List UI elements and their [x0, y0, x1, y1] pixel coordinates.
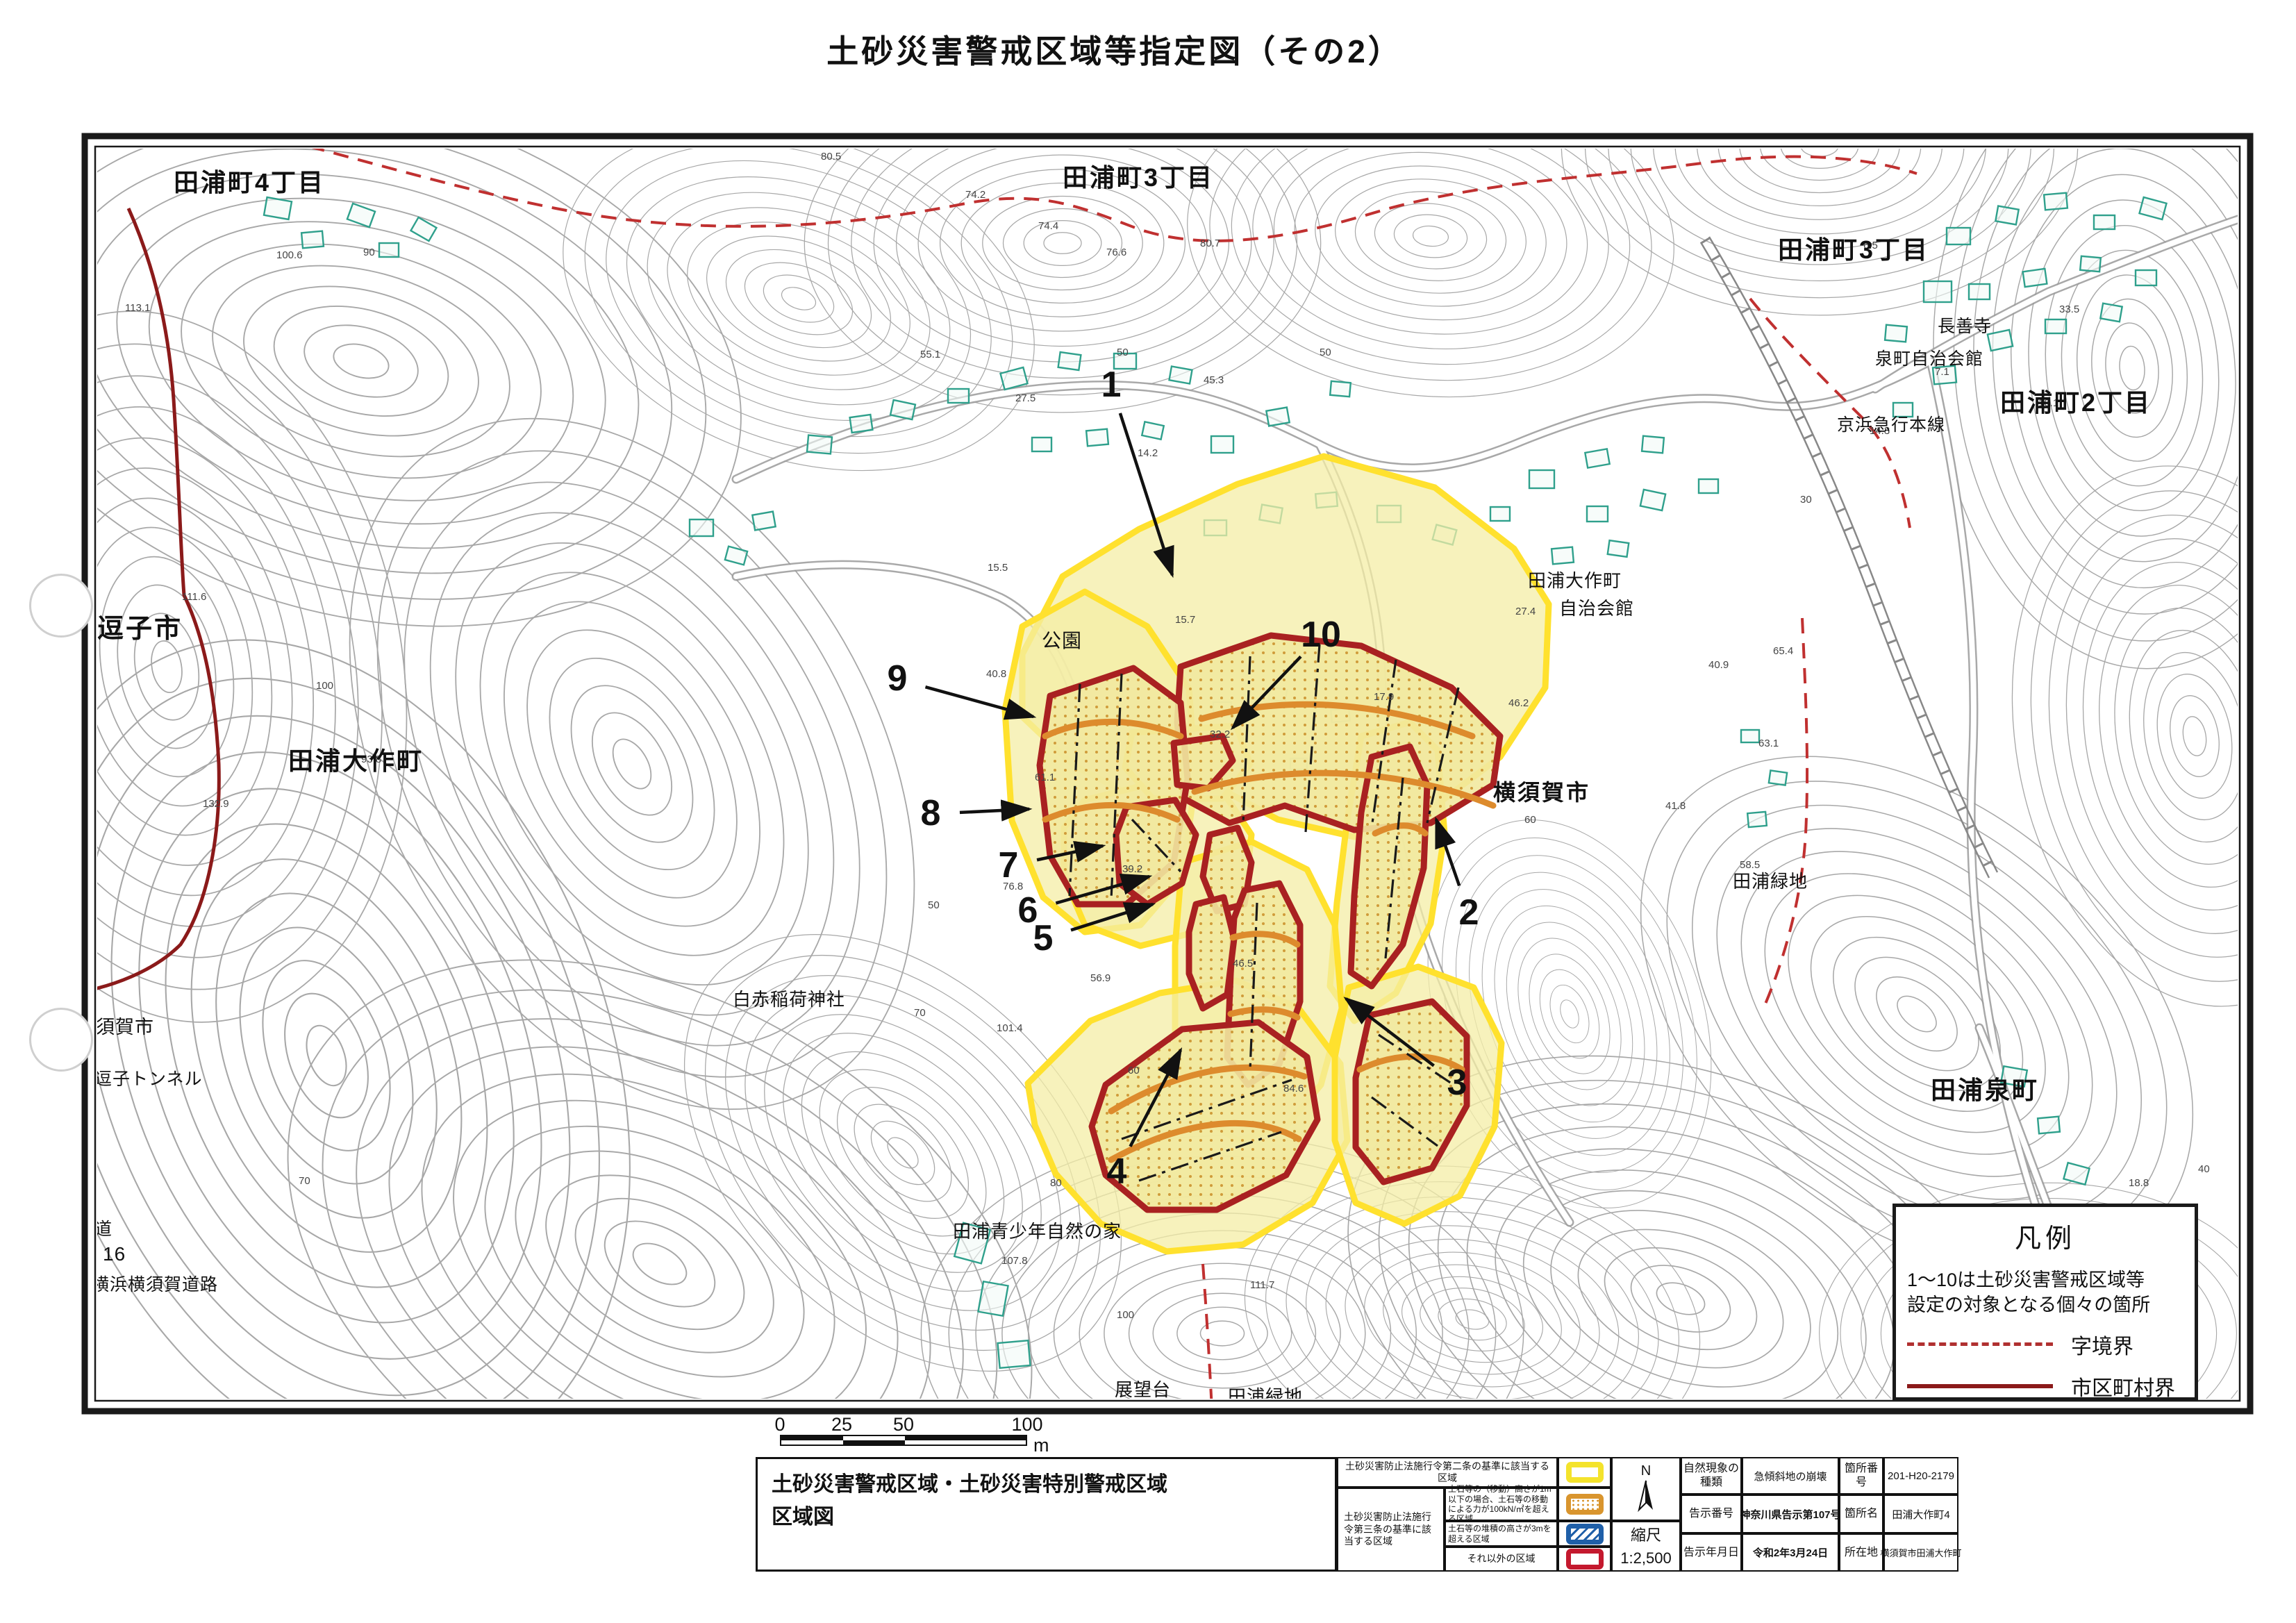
scale-tick: 25: [831, 1414, 852, 1435]
elevation-label: 50: [928, 899, 940, 911]
building-footprint: [1490, 507, 1510, 521]
elevation-label: 70: [914, 1007, 926, 1019]
elevation-label: 18.8: [2129, 1177, 2149, 1189]
building-footprint: [1885, 325, 1907, 342]
zone-number: 9: [888, 658, 908, 699]
elevation-label: 58.5: [1740, 859, 1760, 871]
elevation-label: 80.5: [821, 151, 841, 163]
building-footprint: [2038, 1117, 2060, 1134]
legend-row-aza-boundary: 字境界: [1907, 1329, 2195, 1360]
legend-title: 凡例: [1896, 1217, 2195, 1255]
building-footprint: [1640, 490, 1665, 510]
elevation-label: 132.9: [203, 798, 229, 810]
criteria-row3-label: 土石等の堆積の高さが3mを超える区域: [1445, 1521, 1558, 1547]
zone-number: 1: [1101, 365, 1122, 405]
place-label: 田浦町4丁目: [174, 168, 325, 197]
place-label: 長善寺: [1938, 317, 1992, 336]
warning-zone-swatch: [1566, 1462, 1604, 1483]
building-footprint: [1608, 540, 1629, 557]
zone-number: 7: [999, 845, 1019, 885]
building-footprint: [1529, 470, 1554, 488]
punch-hole: [29, 574, 93, 638]
elevation-label: 107.8: [1001, 1255, 1028, 1267]
elevation-label: 50: [1320, 347, 1331, 358]
map-doc-title-cell: 土砂災害警戒区域・土砂災害特別警戒区域 区域図: [756, 1457, 1337, 1572]
scanned-hazard-map-page: 土砂災害警戒区域等指定図（その2）: [0, 0, 2296, 1623]
zone-number: 3: [1447, 1063, 1467, 1103]
building-footprint: [1169, 367, 1192, 384]
info-label: 告示番号: [1681, 1495, 1742, 1533]
building-footprint: [1552, 547, 1574, 565]
place-label: 泉町自治会館: [1875, 349, 1983, 369]
place-label: 田浦町2丁目: [2000, 388, 2152, 417]
elevation-label: 17.9: [1374, 691, 1394, 703]
building-footprint: [1585, 449, 1609, 467]
scale-cell: 縮尺 1:2,500: [1611, 1521, 1681, 1572]
building-footprint: [807, 435, 832, 454]
info-value: 田浦大作町4: [1883, 1495, 1958, 1533]
building-footprint: [1924, 281, 1952, 302]
building-footprint: [1142, 422, 1164, 439]
building-footprint: [301, 231, 324, 249]
building-footprint: [1947, 228, 1970, 244]
building-footprint: [1747, 812, 1767, 827]
elevation-label: 41.8: [1665, 800, 1686, 812]
elevation-label: 46.5: [1233, 958, 1253, 969]
swatch-cell: [1558, 1488, 1611, 1521]
solid-line-sample: [1907, 1384, 2053, 1388]
criteria-row1-label: 土砂災害防止法施行令第二条の基準に該当する区域: [1337, 1457, 1558, 1488]
elevation-label: 27.5: [1015, 392, 1035, 404]
place-label: 田浦大作町: [1528, 570, 1622, 591]
building-footprint: [1266, 408, 1289, 426]
info-label: 箇所名: [1839, 1495, 1883, 1533]
place-label: 逗子市: [97, 615, 183, 644]
building-footprint: [1587, 506, 1608, 522]
place-label: 自治会館: [1559, 598, 1634, 619]
elevation-label: 45.3: [1204, 374, 1224, 386]
elevation-label: 100: [1117, 1309, 1134, 1321]
zone-number: 6: [1018, 890, 1038, 931]
elevation-label: 40: [2198, 1163, 2210, 1175]
elevation-label: 80: [1050, 1177, 1062, 1189]
special-zone-move-swatch: [1566, 1494, 1604, 1515]
building-footprint: [1699, 479, 1718, 493]
building-footprint: [690, 519, 713, 536]
elevation-label: 84.6: [1283, 1083, 1304, 1095]
info-value: 急傾斜地の崩壊: [1742, 1457, 1839, 1495]
criteria-group-label: 土砂災害防止法施行令第三条の基準に該当する区域: [1337, 1488, 1445, 1572]
elevation-label: 74.4: [1038, 220, 1058, 232]
legend-description: 1～10は土砂災害警戒区域等 設定の対象となる個々の箇所: [1907, 1267, 2195, 1318]
zone-number: 10: [1301, 615, 1341, 655]
elevation-label: 101.4: [997, 1022, 1023, 1034]
building-footprint: [2100, 303, 2122, 322]
elevation-label: 74.2: [965, 189, 985, 201]
building-footprint: [1741, 730, 1759, 742]
info-label: 所在地: [1839, 1533, 1883, 1572]
place-label: 展望台: [1115, 1379, 1171, 1400]
scale-tick: 0: [774, 1414, 785, 1435]
zone-number: 8: [921, 793, 941, 833]
elevation-label: 65.4: [1773, 645, 1793, 657]
legend-row-municipal-boundary: 市区町村界: [1907, 1371, 2195, 1401]
elevation-label: 39.2: [1122, 863, 1142, 875]
scale-unit: m: [1033, 1435, 1049, 1456]
elevation-label: 30: [1800, 494, 1812, 506]
swatch-cell: [1558, 1547, 1611, 1572]
info-value: 令和2年3月24日: [1742, 1533, 1839, 1572]
building-footprint: [1769, 770, 1787, 785]
elevation-label: 111.6: [182, 591, 206, 603]
building-footprint: [1995, 206, 2018, 225]
elevation-label: 90: [363, 247, 375, 258]
place-label: 公園: [1042, 630, 1082, 651]
info-label: 告示年月日: [1681, 1533, 1742, 1572]
place-label: 田浦泉町: [1931, 1076, 2039, 1104]
elevation-label: 60: [1524, 814, 1536, 826]
swatch-cell: [1558, 1457, 1611, 1488]
criteria-row4-label: それ以外の区域: [1445, 1547, 1558, 1572]
building-footprint: [1058, 352, 1081, 370]
building-footprint: [2080, 256, 2101, 272]
info-label: 箇所番号: [1839, 1457, 1883, 1495]
building-footprint: [2023, 269, 2047, 287]
map-sheet-table: 土砂災害警戒区域・土砂災害特別警戒区域 区域図 土砂災害防止法施行令第二条の基準…: [756, 1457, 1958, 1572]
info-label: 自然現象の種類: [1681, 1457, 1742, 1495]
place-label: 田浦緑地: [1733, 871, 1808, 892]
elevation-label: 80.7: [1200, 238, 1220, 249]
elevation-label: 14.2: [1138, 447, 1158, 459]
compass-cell: N: [1611, 1457, 1681, 1521]
elevation-label: 15.7: [1175, 614, 1195, 626]
elevation-label: 63.1: [1758, 738, 1779, 749]
punch-hole: [29, 1008, 93, 1072]
place-label: 田浦大作町: [288, 747, 424, 775]
place-label: 田浦町3丁目: [1778, 235, 1929, 264]
place-label: 横須賀市: [1493, 780, 1590, 805]
building-footprint: [850, 415, 873, 433]
building-footprint: [1969, 284, 1990, 299]
building-footprint: [948, 389, 969, 403]
building-footprint: [2094, 215, 2115, 229]
elevation-label: 100: [316, 680, 333, 692]
building-footprint: [752, 512, 775, 531]
special-zone-deposit-swatch: [1566, 1524, 1604, 1545]
building-footprint: [1330, 381, 1351, 397]
building-footprint: [1032, 438, 1051, 451]
compass-n-label: N: [1641, 1463, 1651, 1479]
building-footprint: [2045, 319, 2066, 333]
swatch-cell: [1558, 1521, 1611, 1547]
building-footprint: [1086, 429, 1108, 447]
scale-tick: 100: [1011, 1414, 1042, 1435]
building-footprint: [978, 1281, 1008, 1316]
zone-number: 4: [1107, 1151, 1127, 1192]
scale-tick: 50: [893, 1414, 914, 1435]
elevation-label: 60: [1128, 1065, 1140, 1076]
place-label: 16: [103, 1243, 126, 1265]
elevation-label: 61.1: [1035, 772, 1055, 783]
criteria-row2-label: 土石等の（移動）高さが1m以下の場合、土石等の移動による力が100kN/㎡を超え…: [1445, 1488, 1558, 1521]
scale-bar: 0 25 50 100 m: [757, 1414, 1076, 1463]
north-arrow-icon: [1633, 1479, 1658, 1515]
elevation-label: 56.9: [1090, 972, 1110, 984]
info-value: 神奈川県告示第107号: [1742, 1495, 1839, 1533]
elevation-label: 15.5: [988, 562, 1008, 574]
elevation-label: 100.6: [276, 249, 303, 261]
info-value: 横須賀市田浦大作町: [1883, 1533, 1958, 1572]
place-label: 田浦町3丁目: [1063, 163, 1214, 192]
elevation-label: 46.2: [1508, 697, 1529, 709]
place-label: 横浜横須賀道路: [92, 1275, 218, 1295]
elevation-label: 50: [1117, 347, 1129, 358]
dashed-line-sample: [1907, 1342, 2053, 1346]
place-label: 田浦青少年自然の家: [953, 1221, 1122, 1242]
building-footprint: [1211, 436, 1233, 453]
elevation-label: 55.1: [920, 349, 940, 360]
building-footprint: [1642, 436, 1664, 453]
place-label: 京浜急行本線: [1837, 415, 1945, 435]
place-label: 白赤稲荷神社: [733, 989, 845, 1010]
zone-number: 2: [1459, 892, 1479, 933]
elevation-label: 113.1: [125, 302, 150, 314]
building-footprint: [2136, 270, 2156, 285]
info-value: 201-H20-2179: [1883, 1457, 1958, 1495]
scale-bar-graphic: [780, 1435, 1027, 1446]
elevation-label: 27.4: [1515, 606, 1536, 617]
building-footprint: [1893, 403, 1913, 417]
elevation-label: 76.6: [1106, 247, 1126, 258]
elevation-label: 70: [299, 1175, 310, 1187]
building-footprint: [379, 243, 399, 257]
elevation-label: 33.5: [2059, 303, 2079, 315]
map-legend-box: 凡例 1～10は土砂災害警戒区域等 設定の対象となる個々の箇所 字境界 市区町村…: [1892, 1204, 2198, 1401]
elevation-label: 32.2: [1210, 729, 1230, 740]
building-footprint: [2044, 193, 2068, 210]
building-footprint: [264, 197, 292, 219]
special-zone-other-swatch: [1566, 1549, 1604, 1570]
special-zone-5b: [1189, 897, 1234, 1008]
elevation-label: 40.9: [1708, 659, 1729, 671]
elevation-label: 40.8: [986, 668, 1006, 680]
elevation-label: 111.7: [1250, 1279, 1274, 1291]
building-footprint: [998, 1340, 1031, 1368]
